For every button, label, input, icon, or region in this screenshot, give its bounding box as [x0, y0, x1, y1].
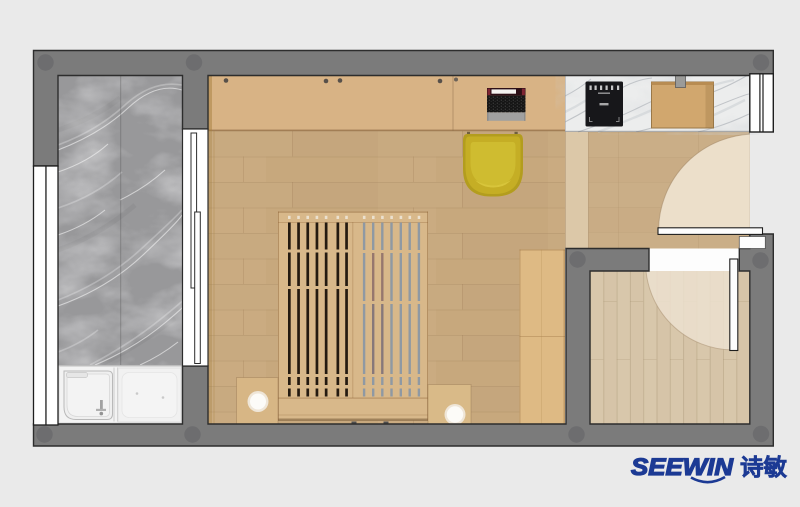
svg-text:诗敏: 诗敏 [740, 454, 787, 480]
svg-text:SEEWIN: SEEWIN [631, 454, 734, 481]
